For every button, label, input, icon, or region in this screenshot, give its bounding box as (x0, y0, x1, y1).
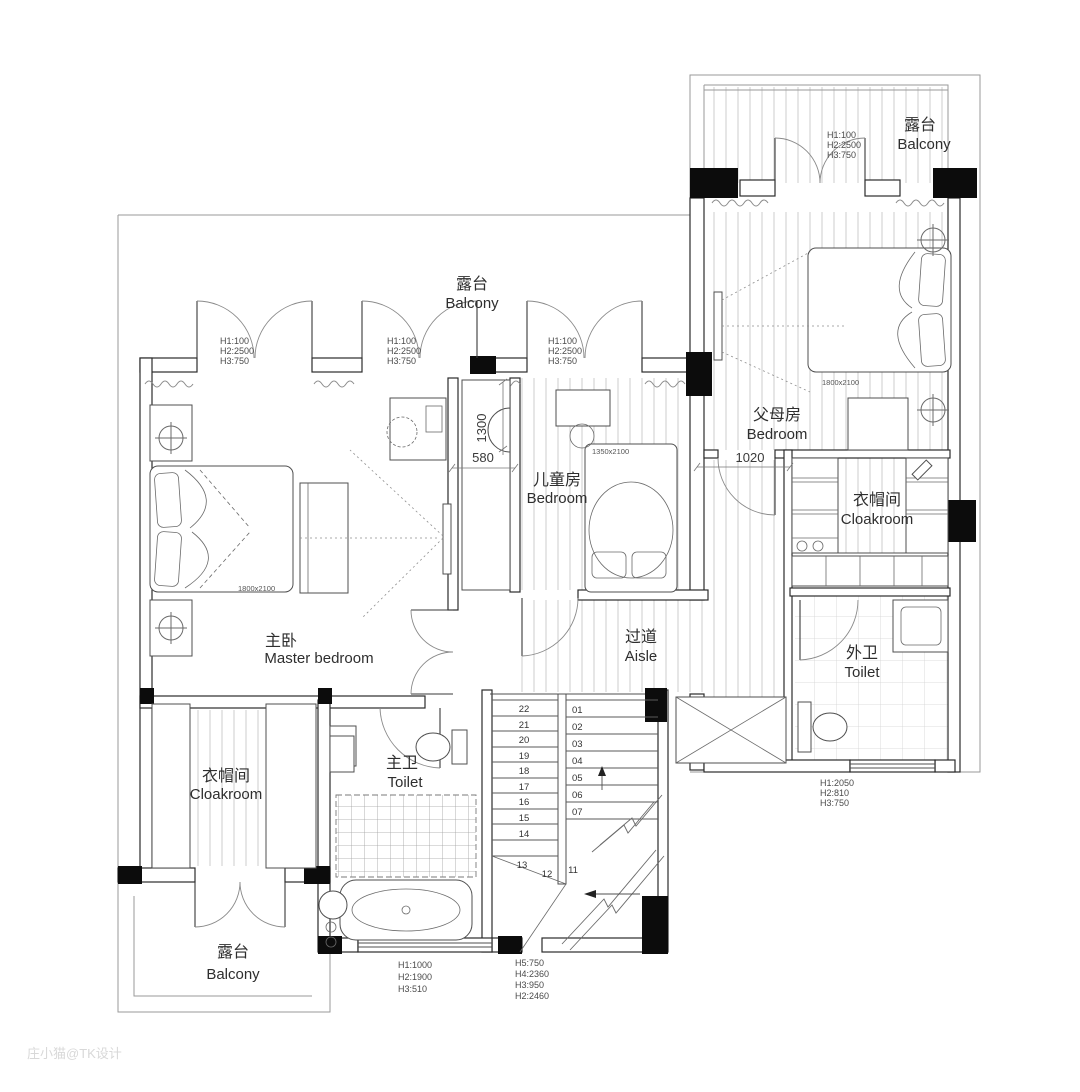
bed-size: 1800x2100 (822, 378, 859, 387)
stair-number: 17 (519, 782, 530, 793)
svg-text:H3:750: H3:750 (827, 150, 856, 160)
drawer-band (792, 556, 948, 586)
toilet-bowl (416, 733, 450, 761)
svg-text:H3:510: H3:510 (398, 984, 427, 994)
wardrobe (152, 704, 190, 868)
wardrobe (266, 704, 316, 868)
stair-number: 12 (542, 869, 553, 880)
tv-panel (443, 504, 451, 574)
stair-number: 16 (519, 797, 530, 808)
floor-plan-drawing: 22 21 20 19 18 17 16 15 14 13 12 11 01 0… (0, 0, 1080, 1087)
room-label-en: Bedroom (747, 426, 808, 443)
room-label-en: Cloakroom (841, 511, 914, 528)
svg-text:H1:100: H1:100 (548, 336, 577, 346)
svg-text:H2:810: H2:810 (820, 788, 849, 798)
stair-number: 20 (519, 735, 530, 746)
toilet-tank (798, 702, 811, 752)
svg-text:H3:750: H3:750 (220, 356, 249, 366)
stair-number: 11 (568, 865, 578, 876)
svg-text:H2:2500: H2:2500 (548, 346, 582, 356)
room-label-zh: 主卫 (386, 754, 418, 772)
svg-text:H3:750: H3:750 (548, 356, 577, 366)
svg-text:H2:2500: H2:2500 (827, 140, 861, 150)
master-bedroom-furniture (150, 398, 451, 656)
bath-sink (319, 891, 347, 919)
stair-number: 05 (572, 773, 583, 784)
svg-text:H3:750: H3:750 (387, 356, 416, 366)
staircase: 22 21 20 19 18 17 16 15 14 13 12 11 01 0… (492, 694, 664, 952)
desk (390, 398, 446, 460)
stair-number: 15 (519, 813, 530, 824)
watermark: 庄小猫@TK设计 (27, 1046, 122, 1061)
room-label-zh: 外卫 (846, 644, 878, 662)
svg-text:H3:950: H3:950 (515, 980, 544, 990)
balcony-top-right-floor (704, 87, 948, 183)
room-label-zh: 衣帽间 (202, 767, 250, 785)
stair-number: 19 (519, 751, 530, 762)
aisle-floor (518, 600, 706, 692)
outer-toilet-window (850, 760, 935, 772)
stair-number: 21 (519, 720, 530, 731)
kids-bed (585, 444, 677, 592)
tv-panel (714, 292, 722, 360)
floor-plan-page: 22 21 20 19 18 17 16 15 14 13 12 11 01 0… (0, 0, 1080, 1087)
door-label-top-mid: H1:100 H2:2500 H3:750 (387, 336, 421, 366)
dim-1300: 1300 (474, 414, 489, 443)
svg-text:H1:100: H1:100 (387, 336, 416, 346)
parents-bed (808, 248, 951, 372)
svg-text:H1:2050: H1:2050 (820, 778, 854, 788)
room-label-en: Cloakroom (190, 786, 263, 803)
bed-size: 1800x2100 (238, 584, 275, 593)
svg-text:H2:2460: H2:2460 (515, 991, 549, 1001)
room-label-en: Master bedroom (264, 650, 373, 667)
toilet-tank (452, 730, 467, 764)
stair-number: 06 (572, 790, 583, 801)
room-label-zh: 露台 (456, 275, 488, 293)
stair-number: 02 (572, 722, 583, 733)
wardrobe (792, 458, 838, 553)
stair-number: 22 (519, 704, 530, 715)
room-label-en: Toilet (844, 664, 880, 681)
master-bed (150, 466, 293, 592)
stair-number: 18 (519, 766, 530, 777)
toilet-bowl (813, 713, 847, 741)
room-label-zh: 儿童房 (533, 470, 581, 489)
stair-number: 13 (517, 860, 528, 871)
room-label-zh: 过道 (625, 628, 657, 646)
bed-size: 1350x2100 (592, 447, 629, 456)
room-label-en: Toilet (387, 774, 423, 791)
wardrobe (906, 458, 948, 553)
svg-text:H4:2360: H4:2360 (515, 969, 549, 979)
window-label-stair: H5:750 H4:2360 H3:950 H2:2460 (515, 958, 549, 1001)
svg-text:H1:100: H1:100 (827, 130, 856, 140)
kids-desk (556, 390, 610, 426)
room-label-en: Balcony (897, 136, 951, 153)
window-label-outer-toilet: H1:2050 H2:810 H3:750 (820, 778, 854, 808)
stair-number: 14 (519, 829, 530, 840)
room-label-en: Bedroom (527, 490, 588, 507)
room-label-zh: 露台 (904, 116, 936, 134)
svg-text:H1:1000: H1:1000 (398, 960, 432, 970)
shower-area (336, 795, 476, 877)
window-label-bath: H1:1000 H2:1900 H3:510 (398, 960, 432, 994)
service-shaft (676, 697, 786, 763)
door-label-wing-balcony: H1:100 H2:2500 H3:750 (827, 130, 861, 160)
room-label-zh: 父母房 (753, 406, 801, 424)
svg-text:H3:750: H3:750 (820, 798, 849, 808)
stair-numbers: 22 21 20 19 18 17 16 15 14 13 12 11 01 0… (517, 704, 583, 880)
room-label-en: Aisle (625, 648, 658, 665)
dresser (848, 398, 908, 450)
dim-580: 580 (472, 450, 494, 465)
room-label-zh: 衣帽间 (853, 491, 901, 509)
svg-text:H2:1900: H2:1900 (398, 972, 432, 982)
dim-1020: 1020 (736, 450, 765, 465)
door-label-top-left: H1:100 H2:2500 H3:750 (220, 336, 254, 366)
door-label-top-right: H1:100 H2:2500 H3:750 (548, 336, 582, 366)
stair-number: 01 (572, 705, 583, 716)
room-label-en: Balcony (206, 966, 260, 983)
svg-text:H2:2500: H2:2500 (387, 346, 421, 356)
svg-text:H5:750: H5:750 (515, 958, 544, 968)
stair-number: 04 (572, 756, 583, 767)
stair-spine (558, 694, 566, 884)
room-label-zh: 露台 (217, 943, 249, 961)
stair-number: 07 (572, 807, 583, 818)
svg-text:H2:2500: H2:2500 (220, 346, 254, 356)
svg-text:H1:100: H1:100 (220, 336, 249, 346)
cabinet (330, 736, 354, 772)
room-label-en: Balcony (445, 295, 499, 312)
room-label-zh: 主卧 (265, 632, 297, 650)
stair-number: 03 (572, 739, 583, 750)
